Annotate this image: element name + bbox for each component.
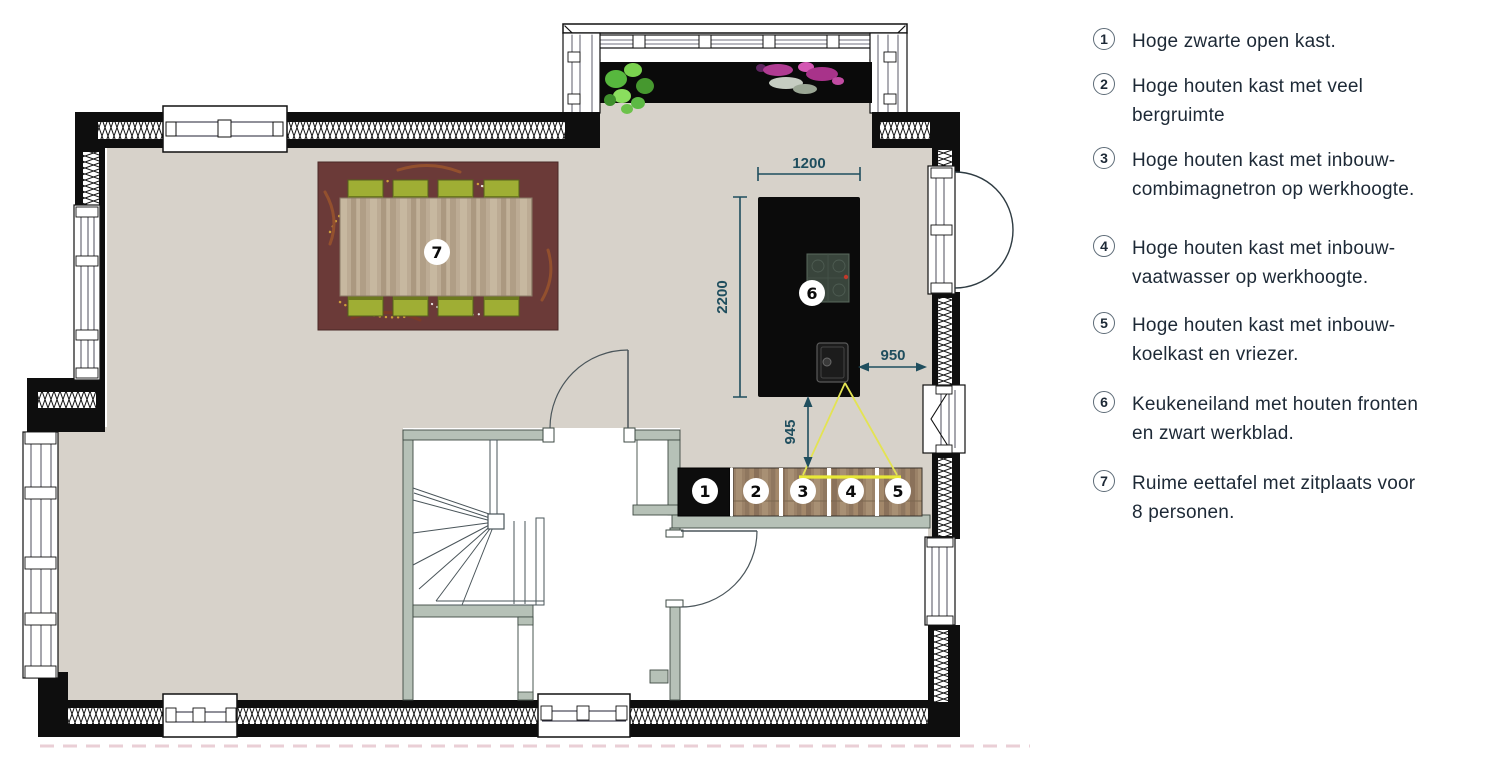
svg-text:5: 5 [892, 482, 903, 501]
legend: 1 Hoge zwarte open kast. 2 Hoge houten k… [1093, 0, 1488, 757]
legend-number-5: 5 [1093, 312, 1115, 334]
cooktop-indicator [844, 275, 848, 279]
legend-number-3: 3 [1093, 147, 1115, 169]
legend-text-line: Hoge houten kast met inbouw- [1132, 311, 1488, 340]
french-doors [928, 166, 1013, 294]
door-swing-arcs [955, 172, 1013, 288]
legend-item-5: 5 Hoge houten kast met inbouw-koelkast e… [1093, 311, 1488, 369]
window-left-lower [23, 432, 58, 678]
svg-text:2: 2 [750, 482, 761, 501]
legend-text-line: koelkast en vriezer. [1132, 340, 1488, 369]
legend-text-line: bergruimte [1132, 101, 1488, 130]
legend-text-line: Hoge zwarte open kast. [1132, 27, 1488, 56]
legend-item-1: 1 Hoge zwarte open kast. [1093, 27, 1488, 56]
window-left-upper [74, 205, 100, 380]
badge-1: 1 [692, 478, 718, 504]
badge-2: 2 [743, 478, 769, 504]
badge-4: 4 [838, 478, 864, 504]
legend-text-line: combimagnetron op werkhoogte. [1132, 175, 1488, 204]
legend-item-7: 7 Ruime eettafel met zitplaats voor8 per… [1093, 469, 1488, 527]
window-bottom-left [163, 694, 237, 737]
svg-text:3: 3 [797, 482, 808, 501]
faucet [823, 358, 831, 366]
legend-number-6: 6 [1093, 391, 1115, 413]
svg-text:7: 7 [431, 243, 442, 262]
badge-6: 6 [799, 280, 825, 306]
legend-text-line: Keukeneiland met houten fronten [1132, 390, 1488, 419]
svg-text:950: 950 [880, 347, 905, 364]
svg-text:1200: 1200 [792, 155, 825, 172]
legend-item-3: 3 Hoge houten kast met inbouw-combimagne… [1093, 146, 1488, 204]
legend-text-line: en zwart werkblad. [1132, 419, 1488, 448]
legend-text-line: 8 personen. [1132, 498, 1488, 527]
svg-text:2200: 2200 [714, 280, 731, 313]
page: { "plan": { "badges": ["1","2","3","4","… [0, 0, 1500, 757]
legend-number-1: 1 [1093, 28, 1115, 50]
legend-item-2: 2 Hoge houten kast met veelbergruimte [1093, 72, 1488, 130]
legend-item-4: 4 Hoge houten kast met inbouw-vaatwasser… [1093, 234, 1488, 292]
floor-plan: 1200 2200 950 945 1 2 3 4 5 6 7 [0, 0, 1060, 757]
legend-text-line: Hoge houten kast met inbouw- [1132, 146, 1488, 175]
legend-text-line: Hoge houten kast met veel [1132, 72, 1488, 101]
legend-text-line: Ruime eettafel met zitplaats voor [1132, 469, 1488, 498]
legend-number-7: 7 [1093, 470, 1115, 492]
badge-3: 3 [790, 478, 816, 504]
legend-number-4: 4 [1093, 235, 1115, 257]
window-awning-right [923, 385, 965, 453]
sink [817, 343, 848, 382]
svg-text:945: 945 [782, 419, 799, 444]
badge-5: 5 [885, 478, 911, 504]
legend-text-line: Hoge houten kast met inbouw- [1132, 234, 1488, 263]
svg-text:1: 1 [699, 482, 710, 501]
window-bottom-center [538, 694, 630, 737]
legend-number-2: 2 [1093, 73, 1115, 95]
under-stair-partition [518, 617, 533, 700]
legend-item-6: 6 Keukeneiland met houten frontenen zwar… [1093, 390, 1488, 448]
window-right-lower [925, 537, 955, 625]
badge-7: 7 [424, 239, 450, 265]
window-top [163, 106, 287, 152]
svg-text:6: 6 [806, 284, 817, 303]
svg-text:4: 4 [845, 482, 856, 501]
legend-text-line: vaatwasser op werkhoogte. [1132, 263, 1488, 292]
